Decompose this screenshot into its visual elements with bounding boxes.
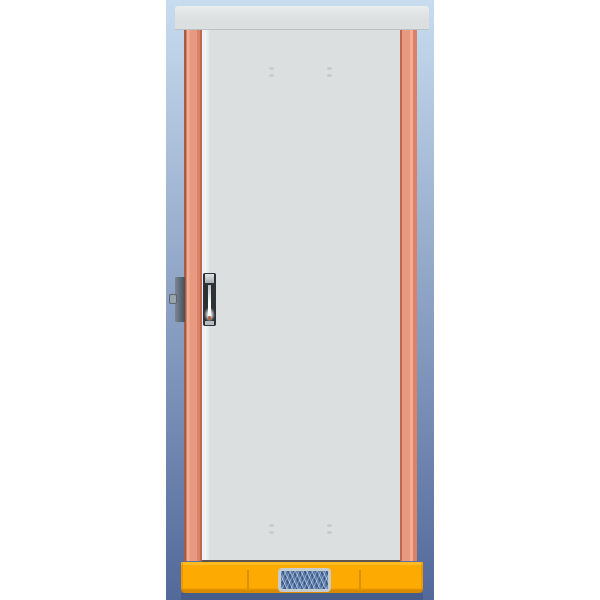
door-screw-dimple: [327, 524, 332, 527]
handle-keyhole-dot: [208, 316, 211, 320]
plinth-panel-seam: [247, 570, 249, 591]
plinth-ground-shadow: [181, 593, 423, 600]
cabinet-frame-rail-left: [184, 28, 202, 561]
door-screw-dimple: [327, 74, 332, 77]
door-screw-dimple: [269, 524, 274, 527]
plinth-vent-grille: [278, 568, 331, 592]
cad-render-viewport: [0, 0, 600, 600]
cabinet-door-panel: [202, 28, 400, 562]
cabinet-frame-rail-right: [400, 28, 417, 561]
door-screw-dimple: [269, 67, 274, 70]
door-screw-dimple: [327, 531, 332, 534]
plinth-panel-seam: [359, 570, 361, 591]
door-screw-dimple: [269, 74, 274, 77]
door-screw-dimple: [269, 531, 274, 534]
side-lock-pin: [169, 294, 177, 304]
handle-bottom-cap: [205, 321, 214, 325]
cabinet-roof-cap: [175, 6, 429, 30]
door-handle-recess: [203, 273, 216, 326]
door-screw-dimple: [327, 67, 332, 70]
handle-top-cap: [205, 274, 214, 283]
door-bottom-edge: [202, 560, 400, 562]
